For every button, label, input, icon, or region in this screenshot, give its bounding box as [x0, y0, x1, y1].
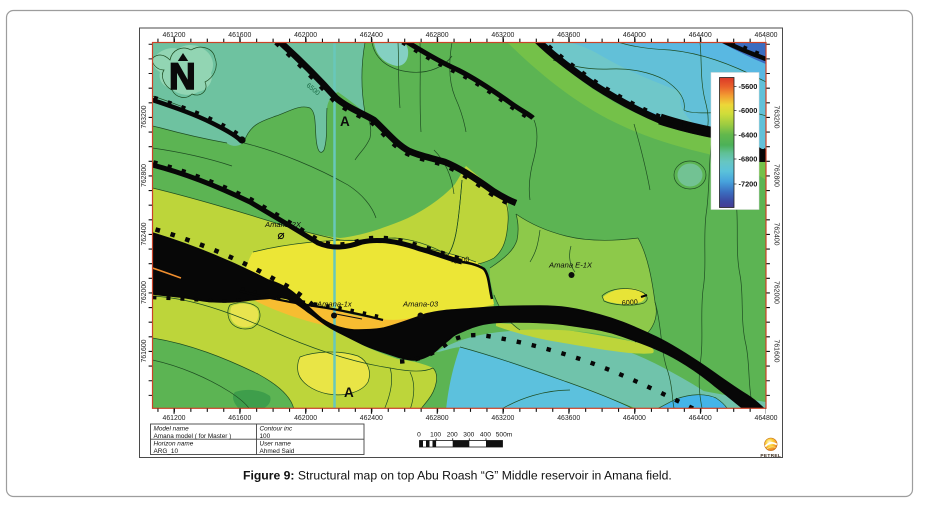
svg-text:762000: 762000 [773, 281, 780, 304]
svg-text:761600: 761600 [773, 340, 780, 363]
svg-text:464400: 464400 [689, 32, 712, 39]
svg-text:A: A [340, 114, 350, 129]
svg-text:Amana-1x: Amana-1x [316, 300, 353, 309]
svg-text:462400: 462400 [360, 415, 383, 422]
svg-text:Ahmed Said: Ahmed Said [260, 448, 295, 455]
svg-text:ARG_10: ARG_10 [154, 448, 179, 455]
svg-text:300: 300 [463, 432, 474, 439]
svg-text:Amana E-1X: Amana E-1X [548, 261, 593, 270]
svg-text:464400: 464400 [689, 415, 712, 422]
svg-text:Horizon name: Horizon name [154, 441, 194, 448]
svg-text:762800: 762800 [141, 164, 148, 187]
svg-text:462800: 462800 [426, 415, 449, 422]
svg-text:763200: 763200 [141, 105, 148, 128]
svg-text:462400: 462400 [360, 32, 383, 39]
svg-text:-7200: -7200 [739, 180, 758, 189]
svg-text:-6400: -6400 [739, 131, 758, 140]
svg-text:464800: 464800 [755, 415, 778, 422]
svg-text:462000: 462000 [294, 415, 317, 422]
svg-text:400: 400 [480, 432, 491, 439]
svg-text:Figure 9: Structural map on to: Figure 9: Structural map on top Abu Roas… [243, 469, 672, 483]
svg-text:100: 100 [260, 433, 271, 440]
svg-text:464800: 464800 [755, 32, 778, 39]
svg-text:0: 0 [417, 432, 421, 439]
svg-text:463600: 463600 [557, 32, 580, 39]
svg-text:462800: 462800 [426, 32, 449, 39]
svg-text:PETREL: PETREL [760, 453, 781, 459]
svg-text:461200: 461200 [163, 415, 186, 422]
svg-text:762400: 762400 [141, 222, 148, 245]
svg-text:-5600: -5600 [739, 82, 758, 91]
svg-text:-6800: -6800 [739, 155, 758, 164]
svg-text:200: 200 [447, 432, 458, 439]
svg-text:Model name: Model name [154, 426, 190, 433]
svg-text:463600: 463600 [557, 415, 580, 422]
svg-text:Contour inc: Contour inc [260, 426, 293, 433]
svg-text:761600: 761600 [141, 339, 148, 362]
svg-text:762800: 762800 [773, 164, 780, 187]
svg-text:463200: 463200 [491, 415, 514, 422]
svg-text:6000: 6000 [621, 297, 638, 307]
svg-text:User name: User name [260, 441, 292, 448]
svg-text:461600: 461600 [228, 415, 251, 422]
svg-text:461200: 461200 [163, 32, 186, 39]
svg-text:500m: 500m [496, 432, 513, 439]
svg-text:763200: 763200 [773, 106, 780, 129]
svg-text:100: 100 [430, 432, 441, 439]
svg-text:Amana model ( for Master ): Amana model ( for Master ) [154, 433, 232, 440]
svg-text:462000: 462000 [294, 32, 317, 39]
svg-text:762000: 762000 [141, 281, 148, 304]
svg-text:463200: 463200 [491, 32, 514, 39]
svg-text:464000: 464000 [623, 415, 646, 422]
svg-text:461600: 461600 [228, 32, 251, 39]
svg-text:-6000: -6000 [739, 106, 758, 115]
svg-text:A: A [344, 385, 354, 400]
svg-text:762400: 762400 [773, 223, 780, 246]
svg-text:N: N [169, 56, 196, 97]
svg-text:464000: 464000 [623, 32, 646, 39]
svg-text:Amana-2X: Amana-2X [264, 220, 302, 229]
svg-text:Amana-03: Amana-03 [402, 300, 439, 309]
